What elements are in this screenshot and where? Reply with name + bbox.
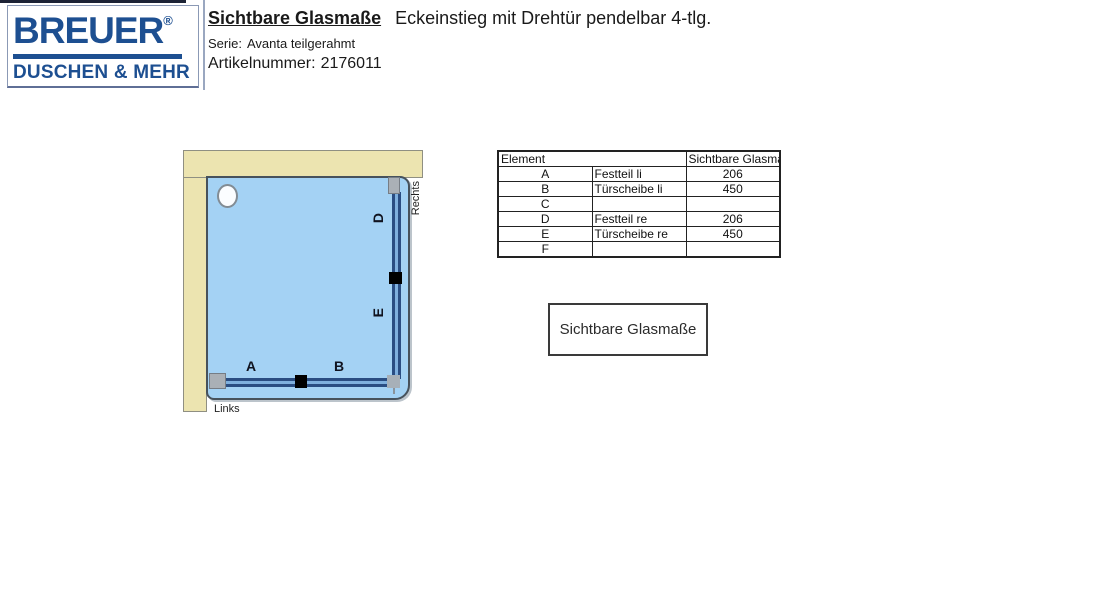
shower-tray: [206, 176, 410, 400]
logo-brand-text: BREUER: [13, 10, 163, 51]
row-element: Türscheibe re: [592, 227, 686, 242]
row-letter: D: [498, 212, 592, 227]
row-letter: C: [498, 197, 592, 212]
logo-tagline: DUSCHEN & MEHR: [13, 62, 198, 84]
registered-mark-icon: ®: [163, 13, 173, 28]
drain-circle-icon: [217, 184, 238, 208]
header-separator: [203, 0, 205, 90]
article-number-value: 2176011: [321, 55, 382, 72]
panel-label-b: B: [334, 358, 344, 374]
col-header-element: Element: [498, 151, 686, 167]
row-letter: A: [498, 167, 592, 182]
logo-divider: [13, 54, 182, 59]
breuer-logo: BREUER® DUSCHEN & MEHR: [7, 5, 199, 88]
table-row: A Festteil li 206: [498, 167, 780, 182]
row-value: 206: [686, 212, 780, 227]
series-label: Serie:: [208, 36, 242, 51]
page-subtitle: Eckeinstieg mit Drehtür pendelbar 4-tlg.: [395, 8, 711, 28]
row-value: [686, 242, 780, 258]
wall-left: [183, 150, 207, 412]
panel-label-e: E: [370, 308, 386, 317]
row-value: 450: [686, 182, 780, 197]
logo-brand: BREUER®: [13, 10, 198, 53]
row-value: 206: [686, 167, 780, 182]
row-element: [592, 197, 686, 212]
row-value: [686, 197, 780, 212]
glass-panel-right: [392, 192, 401, 379]
article-number-line: Artikelnummer:2176011: [208, 55, 382, 73]
table-row: B Türscheibe li 450: [498, 182, 780, 197]
corner-connector-tick: [393, 388, 395, 394]
glass-dimensions-table: Element Sichtbare Glasmaße A Festteil li…: [497, 150, 781, 258]
hinge-marker-right-icon: [389, 272, 402, 284]
glass-panel-left: [225, 378, 393, 387]
series-line: Serie:Avanta teilgerahmt: [208, 36, 355, 51]
hinge-marker-left-icon: [295, 375, 307, 388]
side-label-rechts: Rechts: [410, 181, 422, 215]
header-line: Sichtbare GlasmaßeEckeinstieg mit Drehtü…: [208, 8, 711, 29]
row-element: Türscheibe li: [592, 182, 686, 197]
col-header-value: Sichtbare Glasmaße: [686, 151, 780, 167]
row-value: 450: [686, 227, 780, 242]
row-element: Festteil li: [592, 167, 686, 182]
row-letter: B: [498, 182, 592, 197]
table-row: F: [498, 242, 780, 258]
table-row: D Festteil re 206: [498, 212, 780, 227]
top-edge-bar: [0, 0, 186, 3]
side-label-links: Links: [214, 403, 240, 415]
page-title: Sichtbare Glasmaße: [208, 8, 381, 28]
table-header-row: Element Sichtbare Glasmaße: [498, 151, 780, 167]
wall-top: [183, 150, 423, 178]
table-row: C: [498, 197, 780, 212]
panel-label-d: D: [370, 213, 386, 223]
article-number-label: Artikelnummer:: [208, 55, 316, 72]
row-element: Festteil re: [592, 212, 686, 227]
series-value: Avanta teilgerahmt: [247, 36, 355, 51]
legend-box-label: Sichtbare Glasmaße: [560, 321, 697, 338]
wall-profile-right: [388, 177, 400, 194]
row-element: [592, 242, 686, 258]
panel-label-a: A: [246, 358, 256, 374]
table-row: E Türscheibe re 450: [498, 227, 780, 242]
legend-box: Sichtbare Glasmaße: [548, 303, 708, 356]
row-letter: F: [498, 242, 592, 258]
corner-connector: [387, 375, 400, 388]
datasheet-page: BREUER® DUSCHEN & MEHR Sichtbare Glasmaß…: [0, 0, 1116, 592]
wall-profile-left: [209, 373, 226, 389]
row-letter: E: [498, 227, 592, 242]
